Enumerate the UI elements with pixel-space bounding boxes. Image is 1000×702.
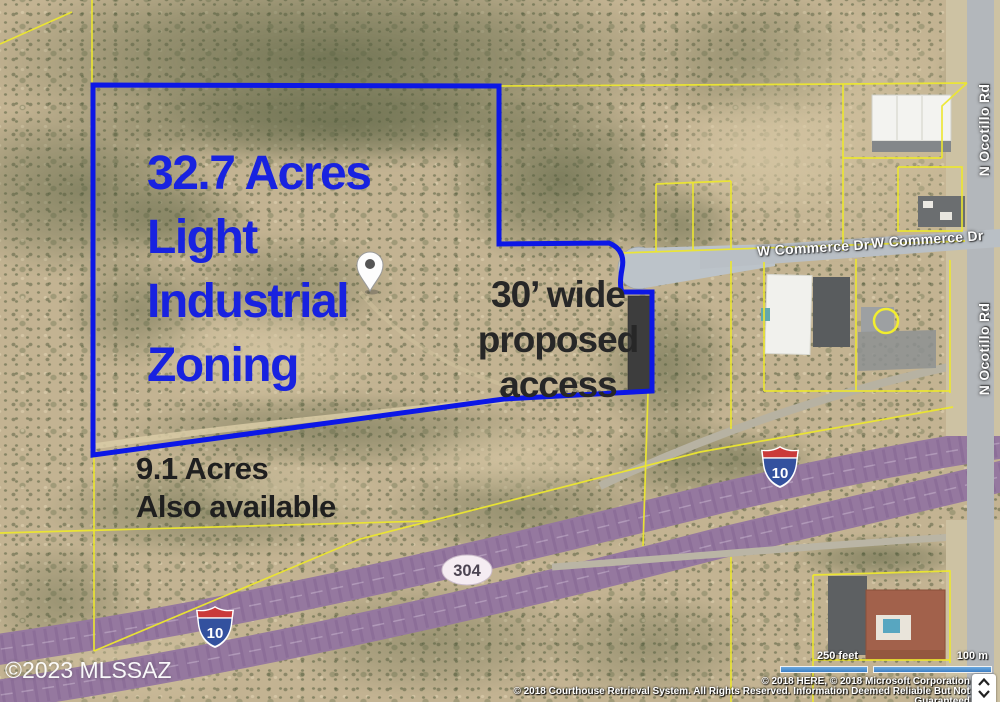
satellite-map: 10 10 304 32.7 Acres Light Industrial Zo… [0, 0, 1000, 702]
parcel-label-line: Industrial [147, 270, 370, 334]
mls-watermark: ©2023 MLSSAZ [5, 657, 172, 684]
parcel-label-line: Light [147, 206, 370, 270]
exit-number: 304 [453, 562, 481, 580]
pool [761, 308, 770, 321]
parcel-label-line: 32.7 Acres [147, 142, 370, 206]
secondary-label-line: Also available [136, 488, 336, 526]
parking-lot [813, 277, 850, 347]
parcel-label-line: Zoning [147, 334, 370, 398]
building [765, 274, 812, 354]
scale-bar-feet [780, 666, 868, 673]
building [872, 95, 951, 141]
access-label-line: proposed [438, 317, 678, 362]
interstate-shield-number: 10 [207, 625, 224, 642]
road-label-ocotillo-rd: N Ocotillo Rd [976, 84, 992, 177]
access-label-line: 30’ wide [438, 272, 678, 317]
road-label-ocotillo-rd: N Ocotillo Rd [976, 303, 992, 396]
chevron-down-icon [978, 690, 990, 698]
attribution-line: Guaranteed [914, 696, 970, 702]
scroll-up-button[interactable] [976, 676, 992, 688]
scale-meters-label: 100 m [920, 650, 988, 662]
attribution-line: © 2018 Courthouse Retrieval System. All … [513, 686, 970, 697]
building [918, 196, 965, 227]
secondary-parcel-label: 9.1 Acres Also available [136, 450, 336, 526]
access-label-line: access [438, 362, 678, 407]
secondary-label-line: 9.1 Acres [136, 450, 336, 488]
scroll-down-button[interactable] [976, 688, 992, 700]
scale-feet-label: 250 feet [780, 650, 858, 662]
parking-lot [828, 576, 867, 655]
chevron-up-icon [978, 678, 990, 686]
interstate-shield-number: 10 [772, 465, 789, 482]
scroll-control [972, 674, 996, 702]
pool [883, 619, 900, 633]
exit-304-badge: 304 [442, 555, 492, 585]
proposed-access-label: 30’ wide proposed access [438, 272, 678, 407]
buildings [761, 95, 965, 659]
primary-parcel-label: 32.7 Acres Light Industrial Zoning [147, 142, 370, 398]
scale-bar-meters [873, 666, 992, 673]
